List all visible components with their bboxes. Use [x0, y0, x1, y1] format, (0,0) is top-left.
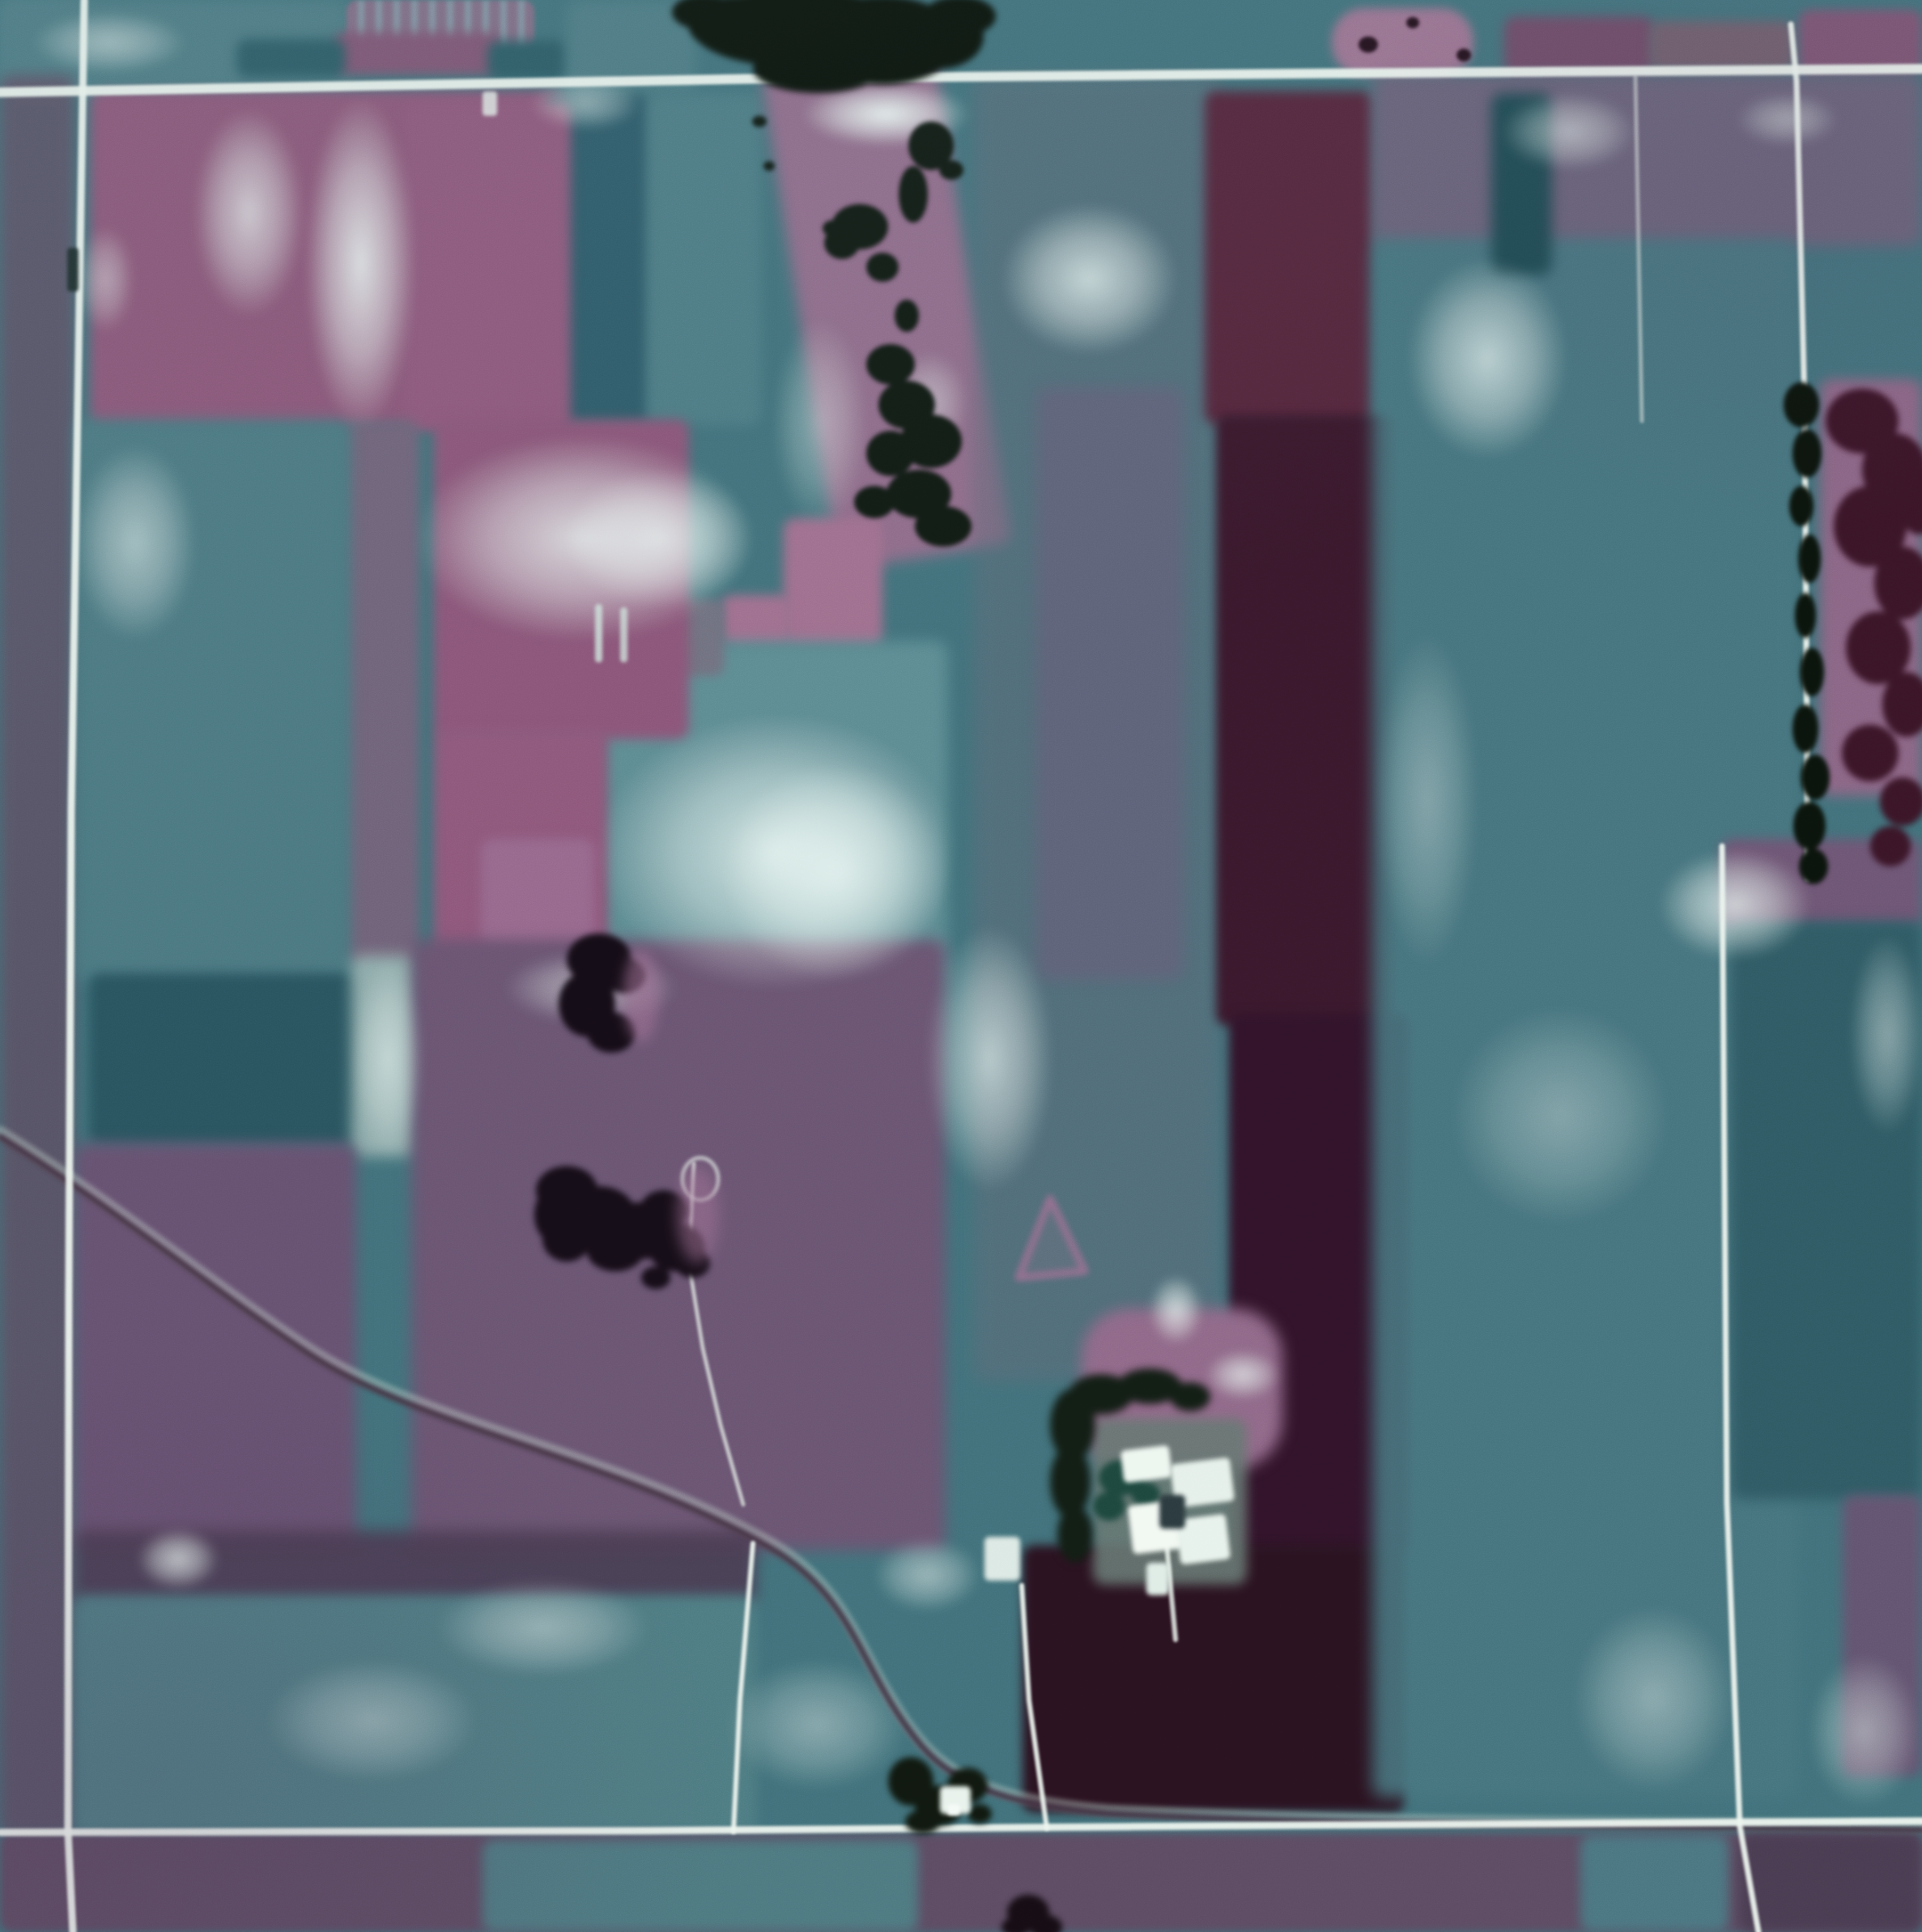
- field-belowroad-teal-2: [1580, 1835, 1729, 1932]
- field-purple-strip-top: [405, 102, 571, 430]
- field-belowroad-teal-1: [483, 1840, 918, 1932]
- tree-blob: [763, 161, 775, 171]
- maroon-block-bottom: [1023, 1545, 1405, 1812]
- field-purple-east-of-square: [411, 939, 946, 1551]
- field-teal-sw: [74, 1595, 756, 1835]
- field-right-darkteal: [1731, 921, 1922, 1500]
- field-dark-band-sw: [74, 1530, 756, 1605]
- tree-blob: [1798, 534, 1821, 583]
- creek-pink-block: [784, 518, 882, 648]
- field-muted-left-low: [74, 1143, 356, 1548]
- field-right-muted-band: [1372, 74, 1922, 246]
- se-farm-building: [940, 1786, 971, 1814]
- field-west-margin: [0, 74, 74, 1836]
- field-purple-strip-mid: [434, 419, 689, 739]
- white-yard-patch: [984, 1537, 1020, 1581]
- tree-blob: [1050, 1445, 1091, 1518]
- maroon-strip-upper: [1205, 91, 1373, 424]
- field-top-purple-2: [1799, 10, 1922, 74]
- aerial-photo: [0, 0, 1922, 1932]
- farmstead-yard: [1093, 1419, 1247, 1585]
- field-right-purple-band: [1721, 839, 1922, 926]
- field-pink-north-of-trees: [481, 839, 594, 946]
- tree-blob: [905, 1810, 941, 1834]
- field-top-darkteal-west: [236, 39, 346, 78]
- tree-blob: [967, 1804, 992, 1823]
- field-darkteal-square: [89, 973, 358, 1145]
- field-teal-west-mid: [75, 419, 351, 982]
- field-top-teal-mid: [567, 0, 696, 93]
- field-teal-east-of-T0: [648, 93, 761, 425]
- right-trees-pink-bg: [1820, 379, 1922, 796]
- blob-darkteal-right-road: [1491, 93, 1552, 275]
- se-farm-bright-dot: [947, 1804, 960, 1815]
- tree-blob: [688, 0, 785, 53]
- field-purple-tinge-band: [1036, 387, 1184, 980]
- field-belowroad-dark-right: [1739, 1833, 1922, 1932]
- tree-blob: [947, 1768, 988, 1803]
- tree-blob: [1795, 593, 1816, 638]
- field-right-graypurple: [1843, 1495, 1922, 1777]
- trees-se-farm: [888, 1757, 992, 1834]
- field-top-gray: [1650, 21, 1794, 71]
- field-top-darkteal-east: [487, 40, 568, 79]
- tree-blob: [888, 1757, 933, 1806]
- tree-blob: [923, 0, 996, 36]
- field-pale-band: [351, 955, 418, 1156]
- field-top-purple-patch: [334, 32, 500, 74]
- field-gray-strip: [345, 419, 419, 964]
- field-top-purple-1: [1504, 16, 1654, 74]
- creek-pink-arm: [721, 595, 792, 647]
- tree-blob: [915, 1785, 963, 1826]
- maroon-strip-mid: [1216, 415, 1393, 1026]
- hill-pink: [1332, 8, 1473, 76]
